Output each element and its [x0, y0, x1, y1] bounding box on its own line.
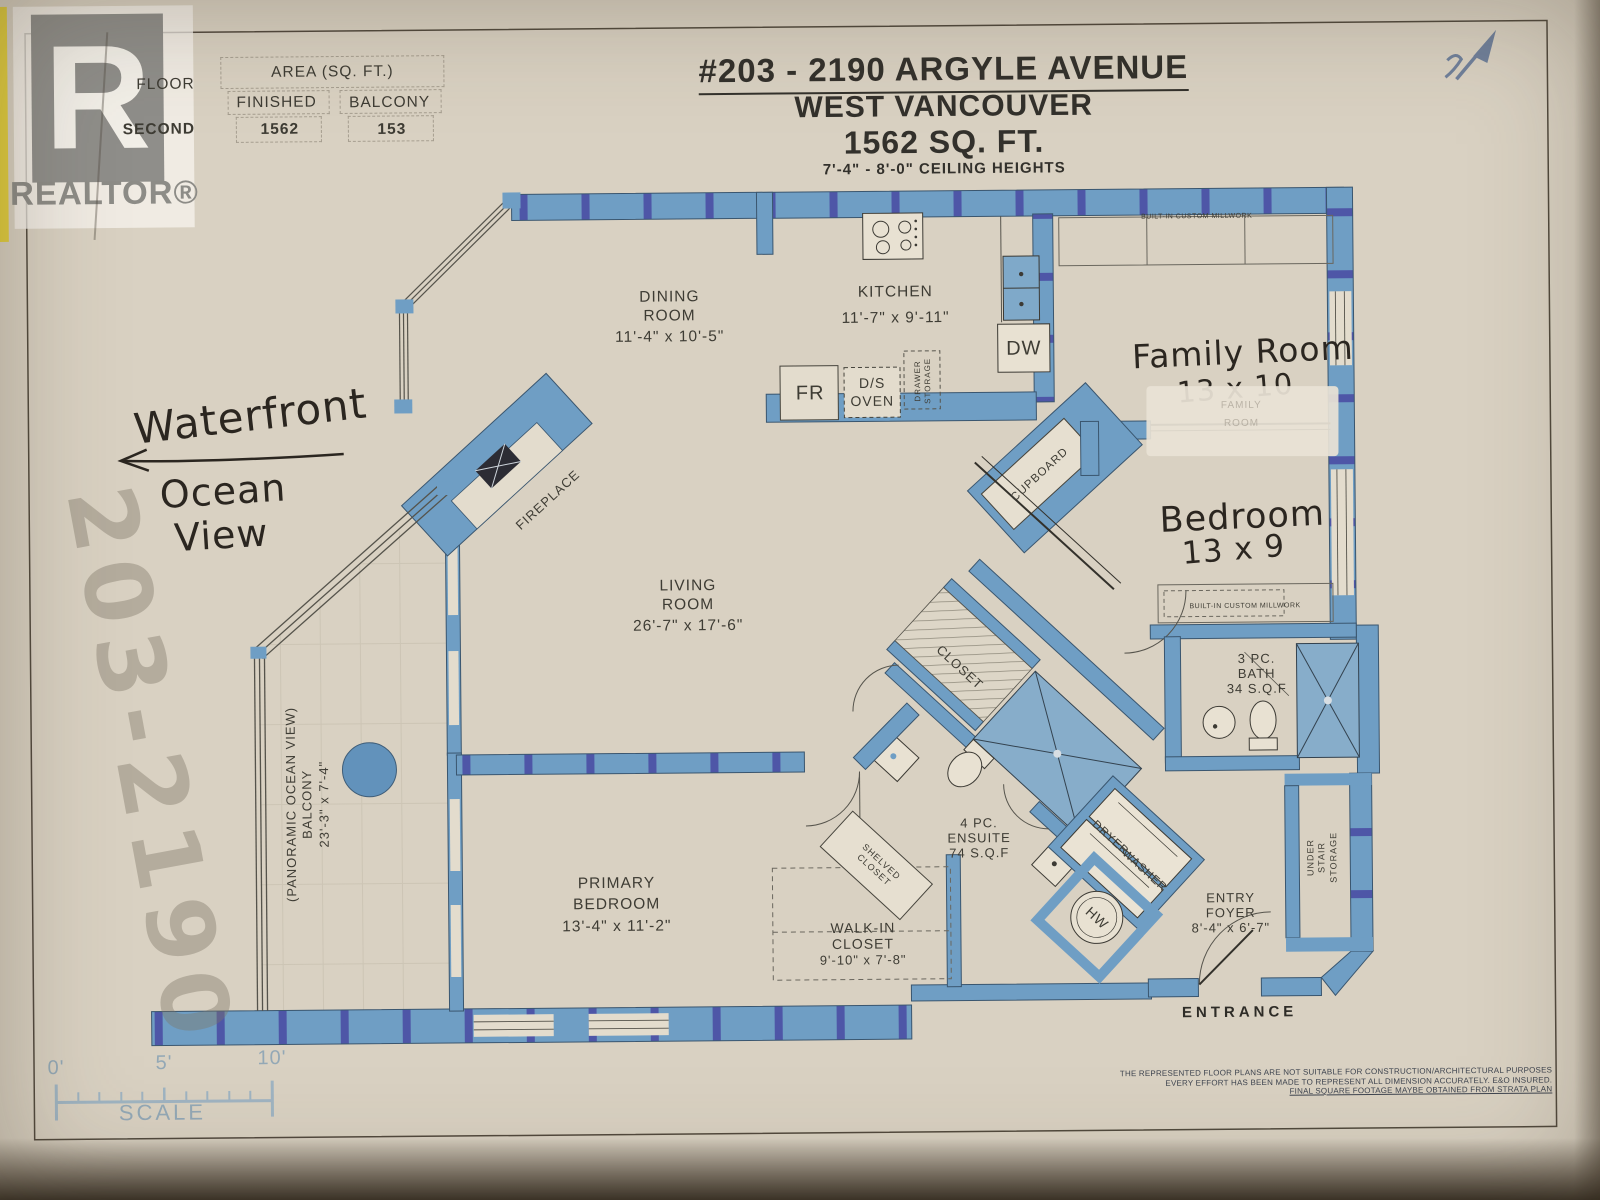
balcony-label: BALCONY [349, 93, 430, 113]
photo-edge-shadow-bottom [0, 1138, 1600, 1200]
bath-wall [1164, 637, 1181, 763]
realtor-logo-card: R REALTOR® [13, 5, 195, 229]
fireplace-block [402, 373, 592, 556]
ensuite-dims: 74 S.Q.F [949, 845, 1009, 862]
bath-wall [1165, 756, 1299, 771]
balcony-dims: 23'-3" x 7'-4" [315, 707, 333, 902]
window-post [394, 399, 412, 413]
title-ceiling: 7'-4" - 8'-0" CEILING HEIGHTS [823, 159, 1066, 180]
railing-post [437, 481, 453, 495]
floor-plan-photo: R REALTOR® FLOOR SECOND AREA (SQ. FT.) F… [0, 0, 1600, 1200]
kitchen-dims: 11'-7" x 9'-11" [841, 308, 949, 328]
dining-name-2: ROOM [643, 306, 695, 326]
balcony-label-block: (PANORAMIC OCEAN VIEW) BALCONY 23'-3" x … [283, 707, 333, 903]
handwritten-bedroom-dims: 13 x 9 [1181, 527, 1287, 574]
disclaimer: THE REPRESENTED FLOOR PLANS ARE NOT SUIT… [1120, 1065, 1553, 1097]
scale-tick-10: 10' [257, 1046, 286, 1071]
finished-value: 1562 [261, 120, 300, 140]
bath-sink-icon [1203, 706, 1235, 738]
bath-dims: 34 S.Q.F [1227, 681, 1287, 698]
entry-dims: 8'-4" x 6'-7" [1192, 920, 1271, 937]
balcony-name-2: BALCONY [299, 707, 317, 902]
living-name-2: ROOM [662, 595, 714, 615]
walkin-wall [946, 855, 961, 987]
bath-fixtures [1202, 643, 1359, 758]
scale-label: SCALE [119, 1098, 206, 1126]
living-name-1: LIVING [659, 576, 716, 596]
primary-dims: 13'-4" x 11'-2" [562, 916, 671, 936]
living-dims: 26'-7" x 17'-6" [633, 616, 744, 636]
primary-name-1: PRIMARY [578, 874, 656, 894]
bath-toilet-icon [1250, 701, 1276, 739]
fridge-label: FR [796, 381, 825, 406]
window-post [395, 299, 413, 313]
dining-corner-windows [398, 198, 515, 401]
millwork-bedroom-label: BUILT-IN CUSTOM MILLWORK [1189, 602, 1300, 612]
ghost-room-label: ROOM [1224, 418, 1259, 431]
finished-label: FINISHED [236, 93, 317, 113]
realtor-logo-letter: R [43, 24, 151, 173]
understair-wall [1286, 937, 1373, 952]
millwork-cabinet-top [1059, 215, 1333, 265]
walkin-name-2: CLOSET [832, 935, 894, 953]
stove-icon [863, 213, 923, 260]
scale-tick-0: 0' [47, 1056, 64, 1081]
balcony-value: 153 [377, 120, 406, 140]
primary-north-wall [456, 752, 804, 775]
window-post [502, 192, 520, 208]
kitchen-name: KITCHEN [858, 282, 933, 302]
balcony-table [342, 743, 396, 797]
primary-name-2: BEDROOM [573, 895, 660, 915]
entry-door-leaf [1199, 930, 1253, 984]
scale-tick-5: 5' [155, 1051, 172, 1076]
title-area: 1562 SQ. FT. [844, 121, 1045, 163]
area-header: AREA (SQ. FT.) [271, 62, 394, 82]
drawer-storage-label: DRAWER STORAGE [913, 358, 933, 404]
entry-wall [1261, 977, 1321, 996]
handwritten-view: View [173, 509, 270, 562]
entry-wall [1148, 979, 1198, 997]
understair-wall [1285, 786, 1300, 938]
ghost-family-label: FAMILY [1221, 400, 1262, 413]
under-stair-label: UNDER STAIR STORAGE [1305, 832, 1339, 883]
dishwasher-label: DW [1006, 336, 1042, 361]
north-arrow-mark-icon [1445, 30, 1496, 79]
railing-post [250, 647, 266, 659]
dining-dims: 11'-4" x 10'-5" [615, 327, 724, 347]
photo-edge-shadow-right [1574, 0, 1600, 1200]
oven-label: D/S OVEN [850, 375, 894, 410]
dining-name-1: DINING [639, 287, 699, 307]
entrance-label: ENTRANCE [1182, 1003, 1298, 1023]
floor-value: SECOND [123, 120, 195, 140]
realtor-wordmark: REALTOR® [6, 173, 202, 213]
balcony-name-1: (PANORAMIC OCEAN VIEW) [283, 707, 301, 902]
walkin-dims: 9'-10" x 7'-8" [820, 952, 907, 969]
floor-label: FLOOR [136, 75, 195, 95]
bedroom-south-wall [1150, 623, 1356, 639]
understair-wall [1285, 773, 1372, 786]
millwork-top-label: BUILT-IN CUSTOM MILLWORK [1141, 213, 1252, 223]
plan-sheet: R REALTOR® FLOOR SECOND AREA (SQ. FT.) F… [0, 0, 1600, 1200]
bedroom-wall [1080, 421, 1098, 475]
